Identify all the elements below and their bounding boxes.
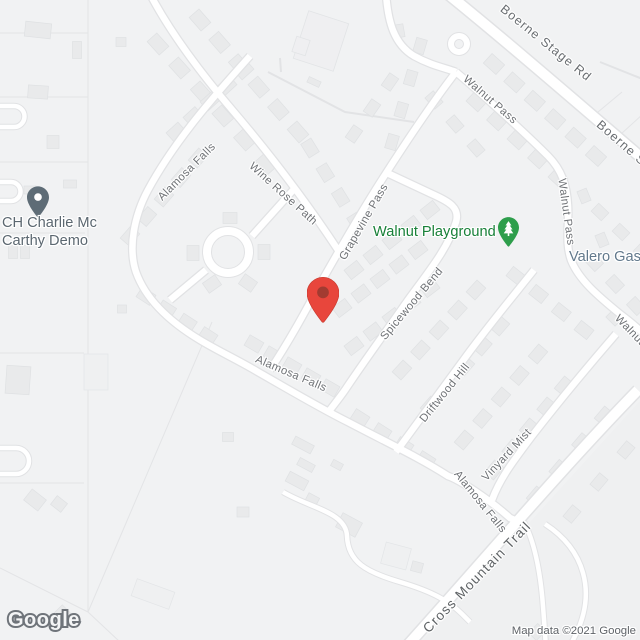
park-tree-pin-icon [498,217,519,247]
google-logo-text: Google [8,609,80,632]
walnut-playground-label: Walnut Playground [373,224,496,240]
charlie-poi-label-line1: CH Charlie Mc [2,215,97,233]
charlie-poi-pin-icon[interactable] [27,185,49,219]
charlie-poi-label-line2: Carthy Demo [2,233,97,251]
valero-gas-poi-label[interactable]: Valero Gas [569,249,640,265]
charlie-poi-label[interactable]: CH Charlie Mc Carthy Demo [2,215,97,250]
walnut-playground-poi[interactable]: Walnut Playground [373,217,519,247]
map-canvas[interactable]: Boerne Stage RdBoerne Stage RdWalnut Pas… [0,0,640,640]
map-attribution: Map data ©2021 Google [512,625,636,637]
google-logo[interactable]: Google Google [8,609,78,635]
destination-marker-icon[interactable] [307,277,339,323]
